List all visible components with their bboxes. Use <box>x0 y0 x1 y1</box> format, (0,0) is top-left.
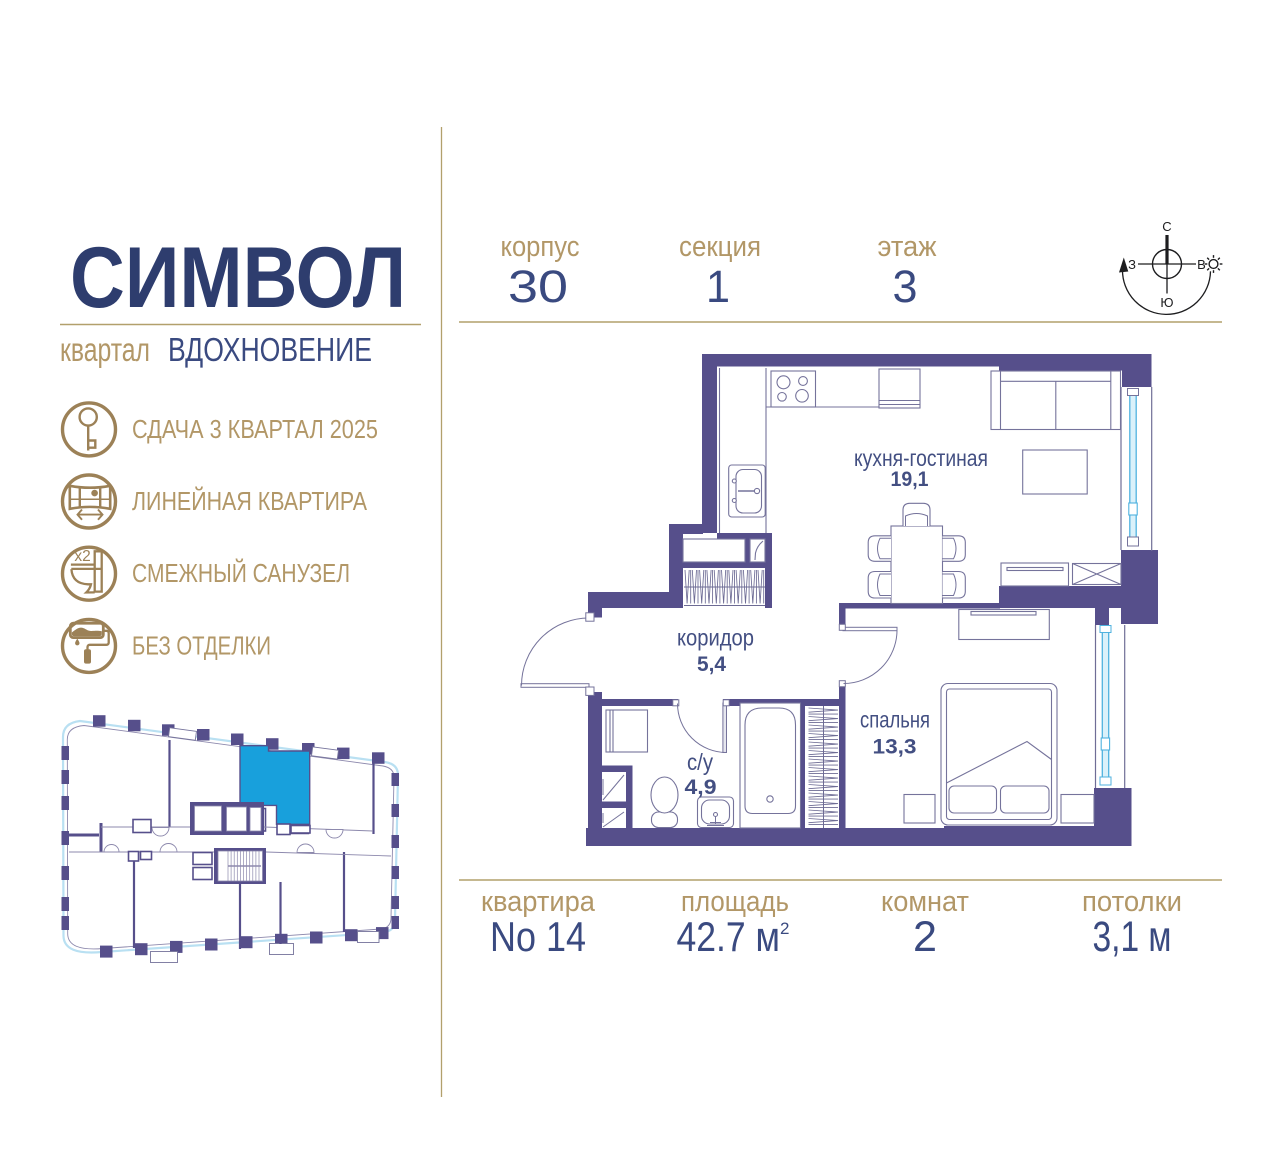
svg-text:3,1 м: 3,1 м <box>1093 913 1172 961</box>
svg-text:с/у: с/у <box>687 749 713 775</box>
svg-text:Ю: Ю <box>1160 295 1173 310</box>
svg-text:СМЕЖНЫЙ САНУЗЕЛ: СМЕЖНЫЙ САНУЗЕЛ <box>132 558 350 588</box>
svg-text:БЕЗ ОТДЕЛКИ: БЕЗ ОТДЕЛКИ <box>132 630 271 660</box>
svg-text:СИМВОЛ: СИМВОЛ <box>70 230 406 326</box>
svg-text:квартал: квартал <box>60 331 150 368</box>
svg-text:секция: секция <box>679 231 761 263</box>
svg-text:С: С <box>1162 219 1171 234</box>
svg-text:30: 30 <box>508 261 568 312</box>
svg-text:ЛИНЕЙНАЯ КВАРТИРА: ЛИНЕЙНАЯ КВАРТИРА <box>132 486 368 516</box>
svg-text:3: 3 <box>893 261 918 312</box>
svg-text:В: В <box>1197 257 1206 272</box>
svg-text:2: 2 <box>780 919 789 938</box>
svg-text:корпус: корпус <box>501 231 580 263</box>
svg-text:5,4: 5,4 <box>697 653 726 676</box>
svg-text:З: З <box>1128 257 1136 272</box>
svg-text:ВДОХНОВЕНИЕ: ВДОХНОВЕНИЕ <box>168 331 372 368</box>
svg-text:19,1: 19,1 <box>891 468 929 491</box>
svg-text:этаж: этаж <box>878 231 938 263</box>
svg-text:13,3: 13,3 <box>873 736 917 759</box>
svg-text:2: 2 <box>913 913 937 961</box>
svg-text:42.7 м: 42.7 м <box>677 913 781 960</box>
svg-text:СДАЧА 3 КВАРТАЛ 2025: СДАЧА 3 КВАРТАЛ 2025 <box>132 414 378 444</box>
svg-text:No 14: No 14 <box>490 913 586 960</box>
svg-text:1: 1 <box>706 261 730 312</box>
svg-text:спальня: спальня <box>860 707 930 733</box>
svg-text:x2: x2 <box>74 548 90 565</box>
svg-text:4,9: 4,9 <box>685 776 717 799</box>
svg-text:коридор: коридор <box>677 625 754 651</box>
